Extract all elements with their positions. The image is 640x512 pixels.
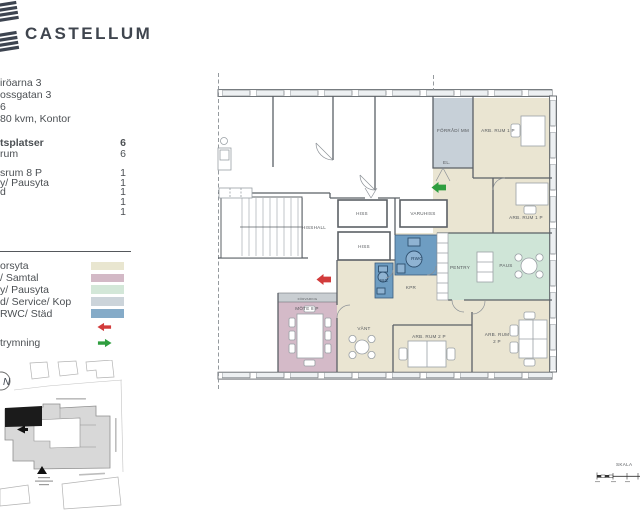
legend-swatch-meeting — [91, 274, 124, 283]
green-exit-arrow-icon — [97, 338, 112, 348]
legend-row: / Samtal — [0, 272, 124, 284]
legend-swatch-office — [91, 262, 124, 271]
stats-value: 6 — [120, 149, 126, 160]
legend-row: y/ Pausyta — [0, 284, 124, 296]
legend-label: trymning — [0, 337, 97, 349]
room-label-kpr: KPR — [406, 285, 417, 290]
red-exit-arrow-icon — [97, 322, 112, 332]
legend-label: d/ Service/ Kop — [0, 296, 91, 308]
room-label-arbrum1: ARB. RUM 1 P — [481, 128, 515, 133]
legend-row-exit-red — [0, 319, 124, 334]
room-label-forvaring: FÖRVARING — [298, 297, 318, 301]
room-label-rwc: RWC — [411, 256, 423, 261]
stats-label: rum — [0, 149, 18, 160]
legend-row-exit-green: trymning — [0, 335, 124, 350]
scale-bar: SKALA — [588, 455, 640, 500]
legend-label: / Samtal — [0, 272, 91, 284]
stairs — [221, 197, 302, 258]
castellum-logo-icon — [0, 0, 20, 54]
legend-swatch-service — [91, 297, 124, 306]
legend-swatch-pause — [91, 285, 124, 294]
highlighted-premises — [5, 406, 42, 427]
kitchen-cabinets — [437, 233, 448, 300]
room-label-wc: WC — [380, 278, 389, 283]
room-label-hisshall: HISSHALL — [302, 225, 326, 230]
stats-value: 6 — [120, 138, 126, 149]
room-label-arbrum1: ARB. RUM 1 P — [509, 215, 543, 220]
red-exit-arrow-icon — [317, 274, 332, 285]
room-label-mote: MÖTE 8 P — [295, 305, 318, 311]
stats-row: rum 6 — [0, 149, 126, 160]
brand-wordmark: CASTELLUM — [25, 24, 152, 44]
compass-n: N — [3, 377, 11, 388]
legend-swatch-wc — [91, 309, 124, 318]
legend-divider — [0, 251, 131, 252]
floor-plan: HISSHALL HISS HISS VARUHISS FÖRRÅD/ MM E… — [205, 70, 567, 392]
legend-label: RWC/ Städ — [0, 308, 91, 320]
stats-row: 1 — [0, 208, 126, 218]
legend-label: orsyta — [0, 260, 91, 272]
legend-row: orsyta — [0, 260, 124, 272]
legend-row: RWC/ Städ — [0, 308, 124, 320]
tiny-caption — [35, 477, 53, 485]
stats-row: d 1 — [0, 188, 126, 198]
legend-row: d/ Service/ Kop — [0, 296, 124, 308]
room-label-hiss: HISS — [356, 211, 368, 216]
room-forrad — [433, 98, 473, 168]
legend-label: y/ Pausyta — [0, 284, 91, 296]
room-label-arbrum2: ARB. RUM — [485, 332, 509, 337]
property-info: iröarna 3 ossgatan 3 6 80 kvm, Kontor — [0, 77, 71, 125]
room-label-varuhiss: VARUHISS — [410, 211, 435, 216]
property-line: 80 kvm, Kontor — [0, 113, 71, 125]
stats-row: 1 — [0, 198, 126, 208]
room-label-paus: PAUS — [499, 263, 512, 268]
stats-value: 1 — [120, 208, 126, 218]
stats-label: tsplatser — [0, 138, 44, 149]
stats-row: tsplatser 6 — [0, 138, 126, 149]
property-line: ossgatan 3 — [0, 89, 71, 101]
room-label-el: EL. — [443, 160, 451, 165]
stats-row: y/ Pausyta 1 — [0, 179, 126, 189]
property-line: 6 — [0, 101, 71, 113]
room-label-vant: VÄNT — [357, 325, 370, 331]
room-label-hiss: HISS — [358, 244, 370, 249]
room-label-pentry: PENTRY — [450, 265, 470, 270]
room-label-forrad: FÖRRÅD/ MM — [437, 127, 469, 133]
stats-label: d — [0, 188, 6, 198]
stats-table: tsplatser 6 rum 6 srum 8 P 1 y/ Pausyta … — [0, 138, 126, 217]
stats-label: y/ Pausyta — [0, 179, 49, 189]
site-map: N — [0, 360, 125, 510]
property-line: iröarna 3 — [0, 77, 71, 89]
floorplan-sheet: { "header": { "brand": "CASTELLUM" }, "p… — [0, 0, 640, 512]
legend: orsyta / Samtal y/ Pausyta d/ Service/ K… — [0, 260, 124, 350]
room-label-arbrum2: 2 P — [493, 339, 501, 344]
scale-segments — [595, 473, 640, 483]
scale-label: SKALA — [616, 462, 633, 467]
room-label-arbrum2: ARB. RUM 2 P — [412, 334, 446, 339]
